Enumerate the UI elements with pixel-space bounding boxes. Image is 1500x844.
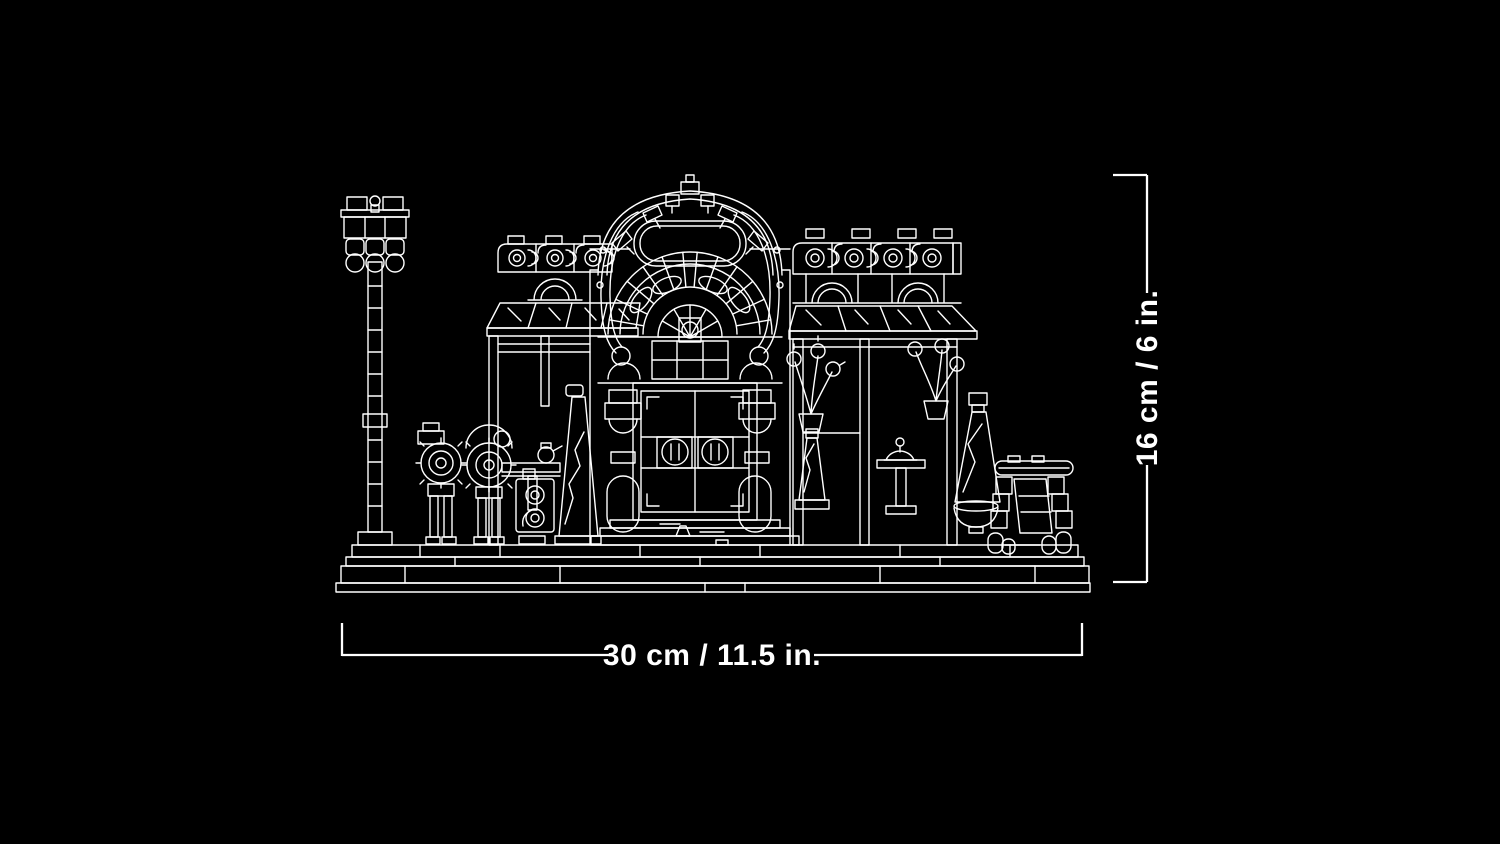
height-dimension-label: 16 cm / 6 in.: [1131, 290, 1164, 467]
product-dimensions-image: 16 cm / 6 in. 30 cm / 11.5 in.: [0, 0, 1500, 844]
building-line-art: [336, 175, 1090, 592]
entrance-pavilion: [590, 175, 799, 545]
height-dimension: 16 cm / 6 in.: [1113, 175, 1164, 582]
right-wing: [787, 229, 1000, 545]
width-dimension-label: 30 cm / 11.5 in.: [603, 639, 821, 672]
street-lamp-icon: [341, 196, 409, 545]
lego-set-line-art-illustration: 16 cm / 6 in. 30 cm / 11.5 in.: [0, 0, 1500, 844]
outdoor-furniture: [416, 423, 1073, 554]
width-dimension: 30 cm / 11.5 in.: [342, 623, 1082, 672]
